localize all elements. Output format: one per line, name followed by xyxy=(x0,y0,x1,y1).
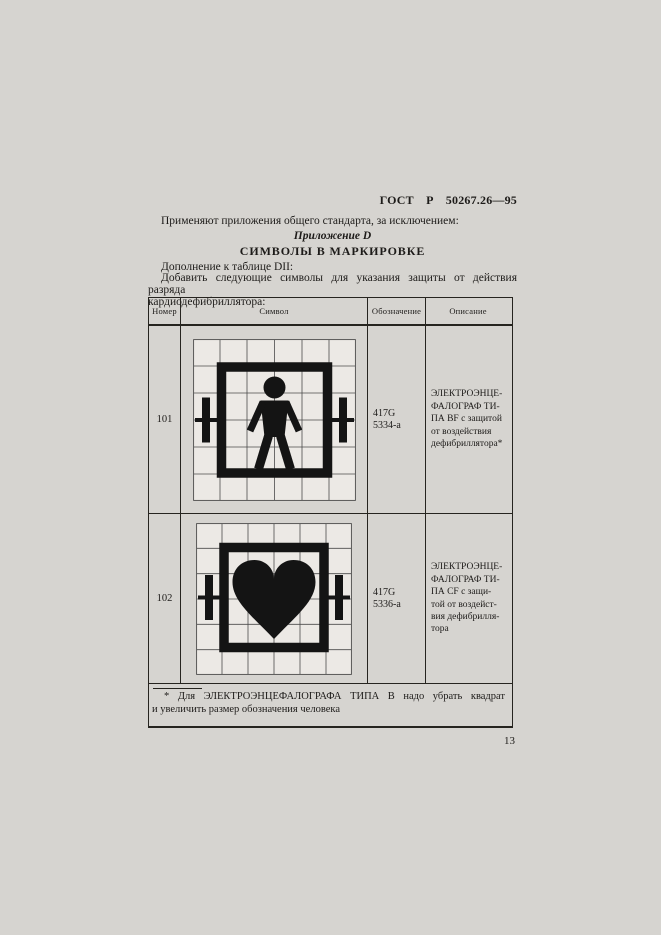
left-electrode-icon xyxy=(205,575,213,620)
description-line: дефибриллятора* xyxy=(431,438,510,450)
row-number: 101 xyxy=(157,414,173,425)
table-header-row: Номер Символ Обозначение Описание xyxy=(149,298,512,326)
description-line: ПА BF с защитой xyxy=(431,413,510,425)
designation-line: 417G xyxy=(373,587,425,599)
header-symbol: Символ xyxy=(181,298,368,324)
standard-reference: ГОСТ Р 50267.26—95 xyxy=(380,193,517,208)
row-101-designation-cell: 417G 5334-a xyxy=(368,326,426,513)
description-line: ФАЛОГРАФ ТИ- xyxy=(431,574,510,586)
row-number: 102 xyxy=(157,593,173,604)
footnote-line2: и увеличить размер обозначения человека xyxy=(152,704,505,717)
add-instruction-line1: Добавить следующие символы для указания … xyxy=(148,272,517,296)
description-line: от воздействия xyxy=(431,426,510,438)
designation-line: 5336-a xyxy=(373,599,425,611)
description-line: ЭЛЕКТРОЭНЦЕ- xyxy=(431,561,510,573)
description-line: ФАЛОГРАФ ТИ- xyxy=(431,401,510,413)
page-number: 13 xyxy=(504,735,515,747)
row-101-symbol-cell xyxy=(181,326,368,513)
defibrillation-proof-type-bf-symbol xyxy=(193,339,356,501)
description-line: ЭЛЕКТРОЭНЦЕ- xyxy=(431,388,510,400)
left-electrode-icon xyxy=(202,397,210,442)
description-line: вия дефибрилля- xyxy=(431,611,510,623)
table-footnote-row: * Для ЭЛЕКТРОЭНЦЕФАЛОГРАФА ТИПА В надо у… xyxy=(149,684,512,726)
table-row-101: 101 xyxy=(149,326,512,514)
scanned-page: ГОСТ Р 50267.26—95 Применяют приложения … xyxy=(0,0,661,935)
designation-line: 5334-a xyxy=(373,420,425,432)
symbols-table: Номер Символ Обозначение Описание 101 xyxy=(148,297,513,728)
intro-paragraph: Применяют приложения общего стандарта, з… xyxy=(148,215,517,227)
right-electrode-icon xyxy=(335,575,343,620)
description-line: той от воздейст- xyxy=(431,599,510,611)
footnote-separator-rule xyxy=(153,688,202,689)
right-electrode-icon xyxy=(339,397,347,442)
row-102-description-cell: ЭЛЕКТРОЭНЦЕ- ФАЛОГРАФ ТИ- ПА CF с защи- … xyxy=(426,514,512,683)
appendix-label: Приложение D xyxy=(148,230,517,242)
row-101-number-cell: 101 xyxy=(149,326,181,513)
header-number: Номер xyxy=(149,298,181,324)
defibrillation-proof-type-cf-symbol xyxy=(196,523,352,675)
header-designation: Обозначение xyxy=(368,298,426,324)
description-line: тора xyxy=(431,623,510,635)
header-description: Описание xyxy=(426,298,512,324)
description-line: ПА CF с защи- xyxy=(431,586,510,598)
footnote-line1: * Для ЭЛЕКТРОЭНЦЕФАЛОГРАФА ТИПА В надо у… xyxy=(152,691,505,704)
table-row-102: 102 417G xyxy=(149,514,512,684)
row-102-symbol-cell xyxy=(181,514,368,683)
row-102-number-cell: 102 xyxy=(149,514,181,683)
footnote-cell: * Для ЭЛЕКТРОЭНЦЕФАЛОГРАФА ТИПА В надо у… xyxy=(149,684,512,726)
row-101-description-cell: ЭЛЕКТРОЭНЦЕ- ФАЛОГРАФ ТИ- ПА BF с защито… xyxy=(426,326,512,513)
appendix-title: СИМВОЛЫ В МАРКИРОВКЕ xyxy=(148,244,517,259)
designation-line: 417G xyxy=(373,408,425,420)
row-102-designation-cell: 417G 5336-a xyxy=(368,514,426,683)
